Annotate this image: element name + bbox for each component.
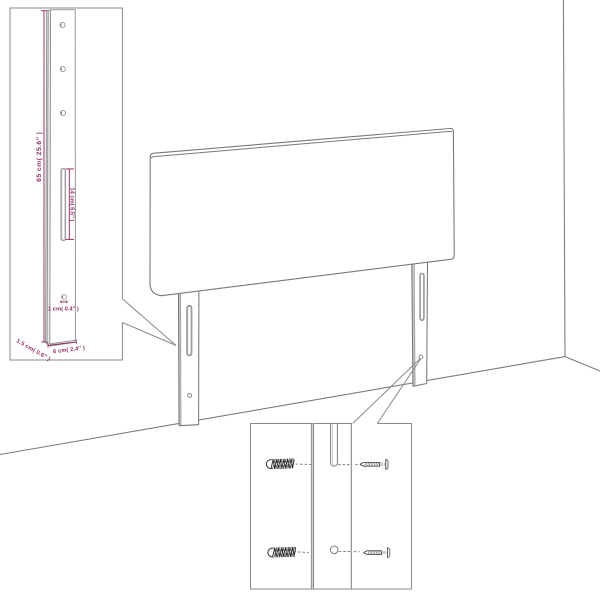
svg-text:14 cm( 5.5″ ): 14 cm( 5.5″ ) xyxy=(69,187,75,221)
svg-text:65 cm( 25.6″ ): 65 cm( 25.6″ ) xyxy=(36,132,43,182)
svg-text:1 cm( 0.4″ ): 1 cm( 0.4″ ) xyxy=(48,306,79,312)
